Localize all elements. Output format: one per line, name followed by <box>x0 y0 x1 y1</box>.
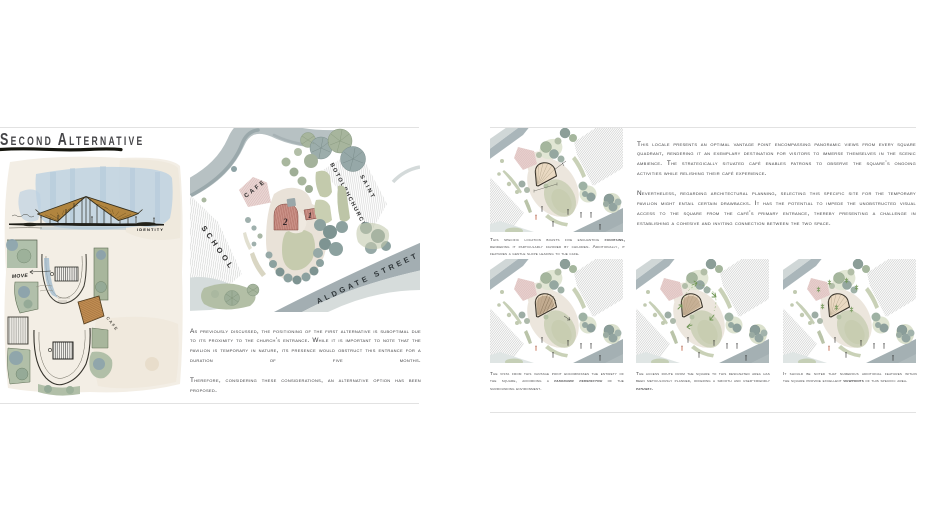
svg-text:MOVE: MOVE <box>12 273 29 280</box>
svg-text:1: 1 <box>308 211 312 220</box>
svg-text:IDENTITY: IDENTITY <box>137 227 164 232</box>
svg-text:2: 2 <box>282 217 288 227</box>
